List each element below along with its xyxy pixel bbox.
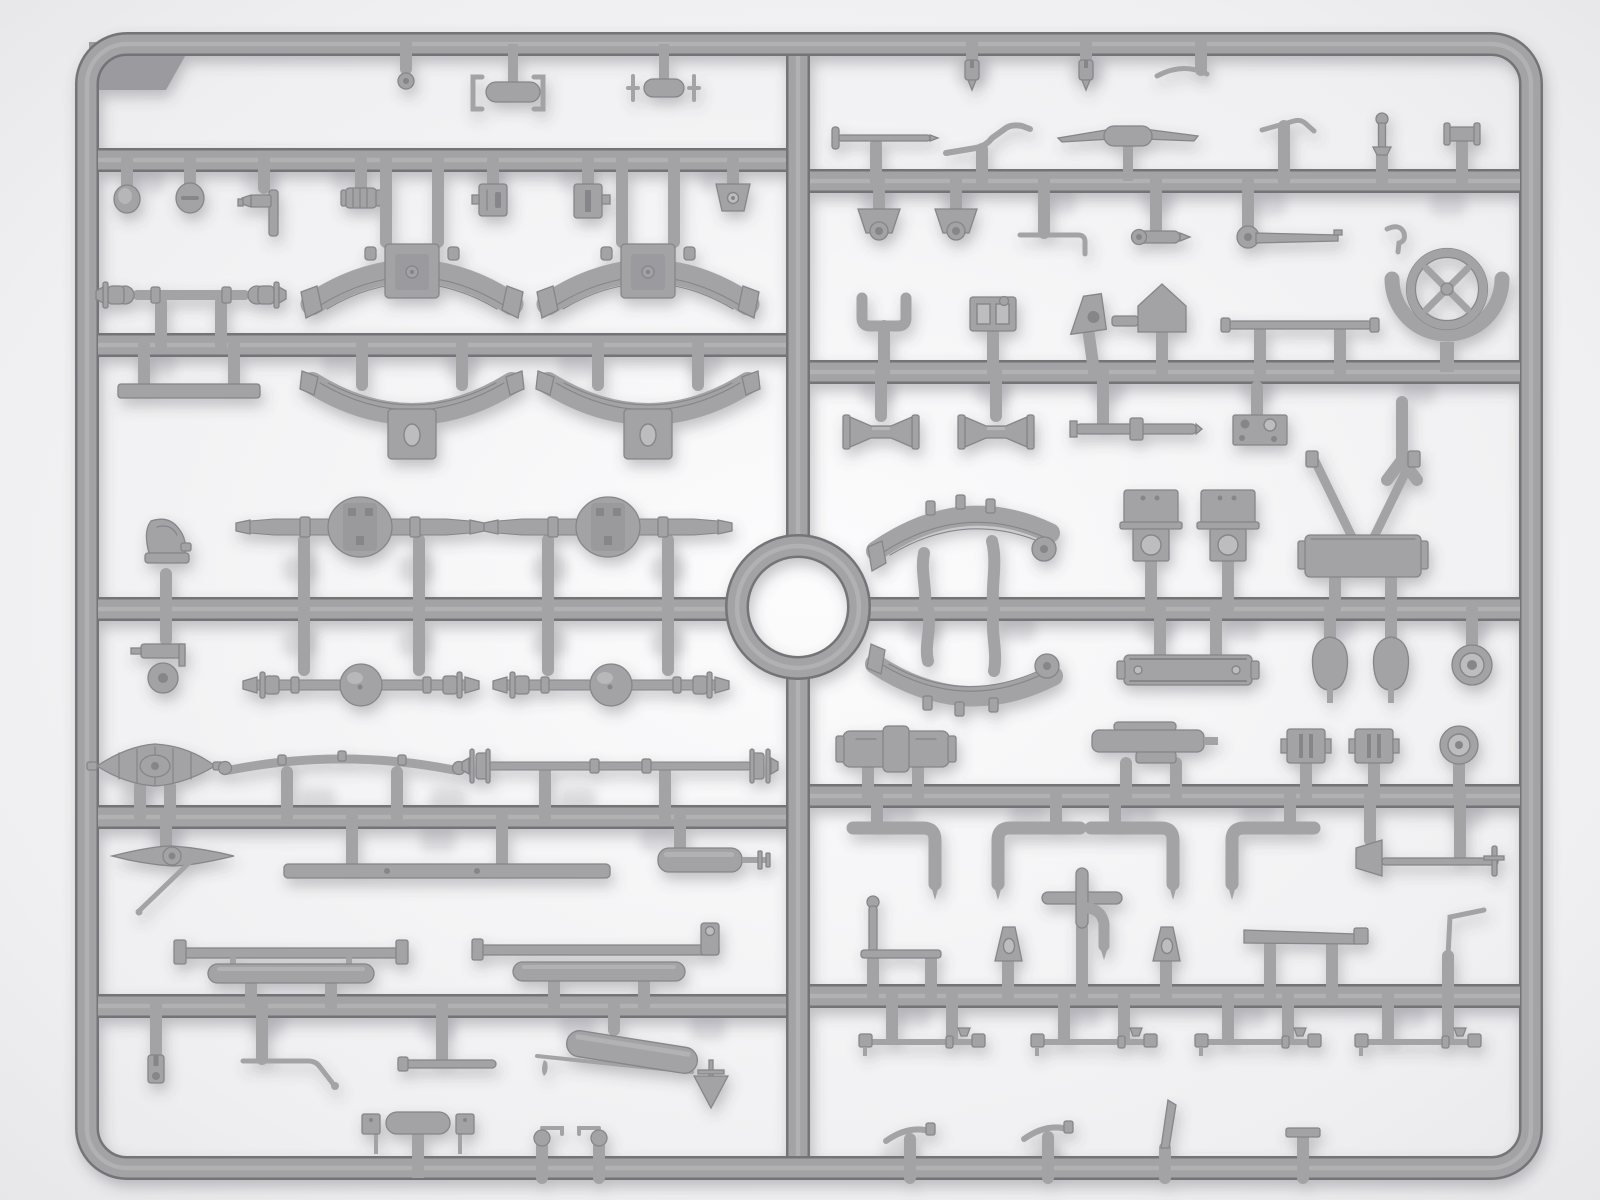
- clevis: [148, 1006, 164, 1083]
- sprue-photo: Gray injection-molded plastic model-kit …: [0, 0, 1600, 1200]
- washer: [398, 44, 414, 89]
- sprue-scene: Gray injection-molded plastic model-kit …: [0, 0, 1600, 1200]
